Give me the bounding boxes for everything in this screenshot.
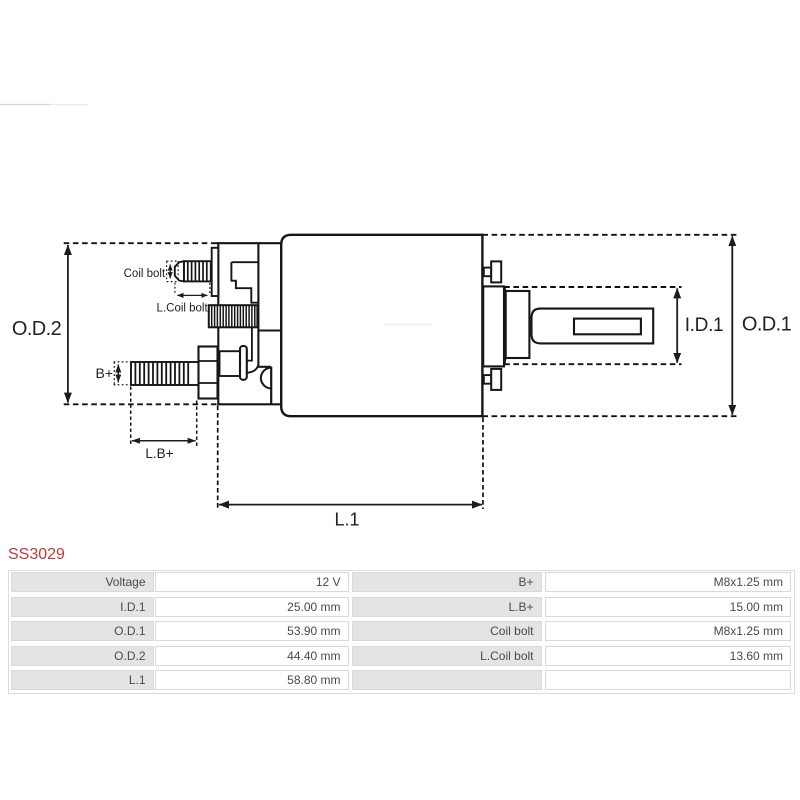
svg-text:L.B+: L.B+ bbox=[145, 446, 173, 461]
svg-text:I.D.1: I.D.1 bbox=[685, 315, 724, 336]
svg-text:O.D.1: O.D.1 bbox=[742, 314, 792, 336]
svg-text:O.D.2: O.D.2 bbox=[12, 318, 62, 340]
svg-text:L.1: L.1 bbox=[334, 509, 359, 529]
svg-text:Coil bolt: Coil bolt bbox=[124, 268, 166, 280]
svg-text:B+: B+ bbox=[95, 365, 113, 381]
svg-text:L.Coil bolt: L.Coil bolt bbox=[157, 303, 209, 315]
